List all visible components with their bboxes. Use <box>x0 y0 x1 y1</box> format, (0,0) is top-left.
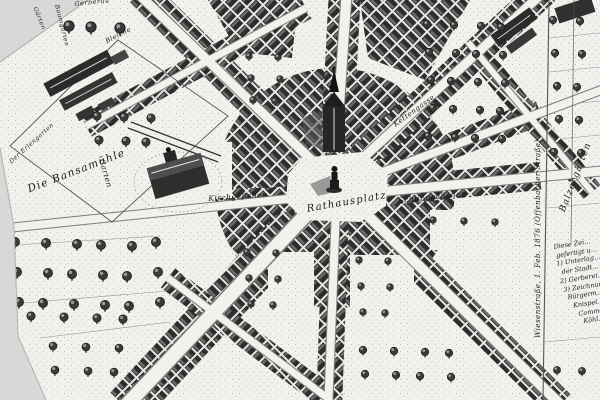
map-canvas <box>0 0 600 400</box>
map-sheet: Die Bansamühle Der Erlengarten Garten Gä… <box>0 0 600 400</box>
